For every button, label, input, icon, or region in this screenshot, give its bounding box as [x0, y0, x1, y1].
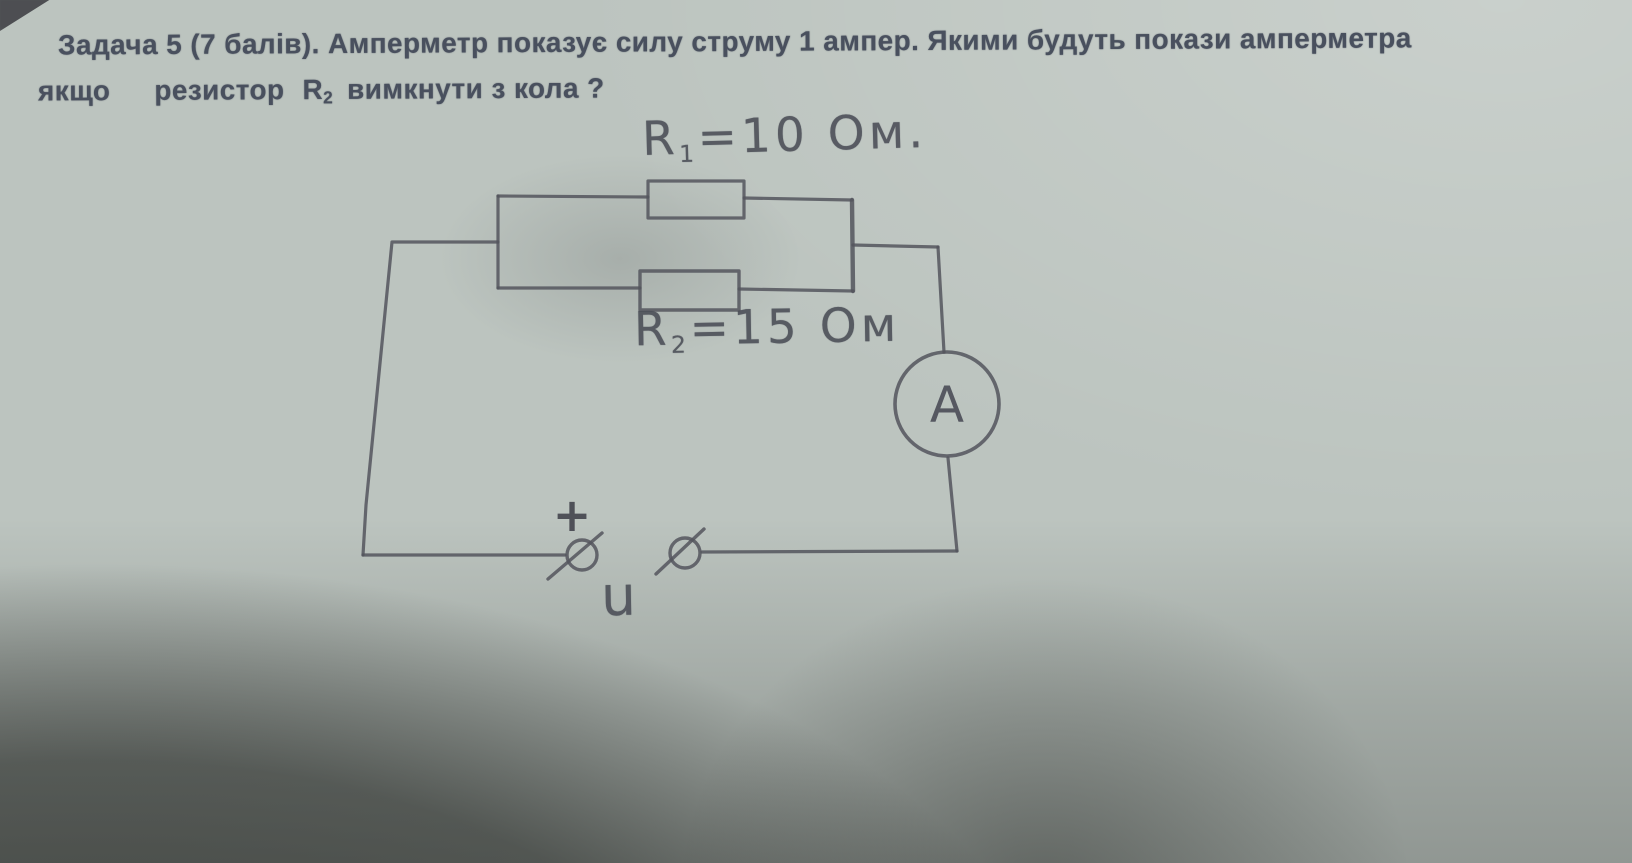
- wire-ammeter-bottom: [948, 458, 957, 551]
- wire-right-junction: [852, 200, 853, 291]
- r1-value-label: R1=10 Ом.: [641, 104, 928, 169]
- wire-r1-right: [744, 198, 852, 200]
- plus-icon: +: [553, 488, 592, 542]
- resistor-r1-box: [648, 181, 744, 218]
- wire-right-horizontal: [853, 245, 938, 247]
- wire-r2-right: [739, 289, 853, 291]
- wire-ammeter-top: [938, 247, 944, 352]
- terminal-right-icon: [670, 538, 700, 568]
- terminal-left-icon: [567, 540, 597, 570]
- wire-r1-left: [498, 196, 648, 197]
- ammeter-letter: A: [930, 376, 964, 434]
- wire-left-side: [363, 242, 498, 555]
- wire-bottom-right: [702, 551, 957, 552]
- photo-of-physics-problem: Задача 5 (7 балів). Амперметр показує си…: [0, 0, 1632, 863]
- voltage-source-label: U: [600, 564, 636, 629]
- r2-value-label: R2=15 Ом: [634, 298, 901, 360]
